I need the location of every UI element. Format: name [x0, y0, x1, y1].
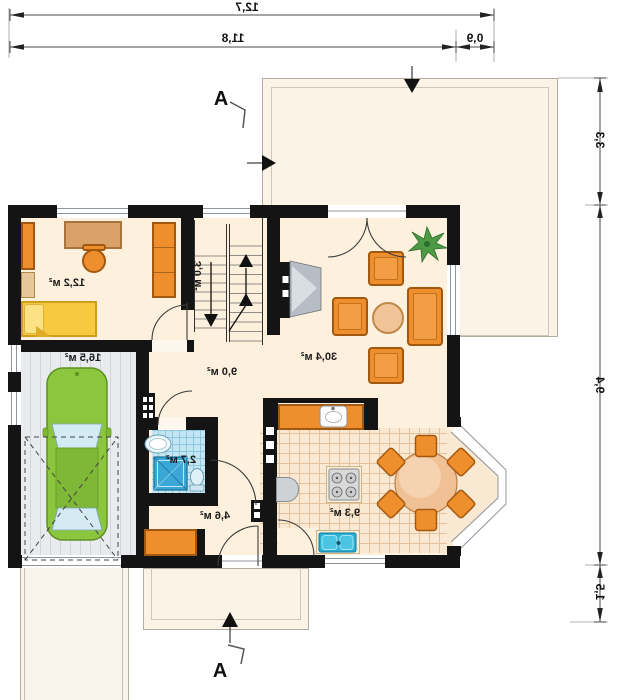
- kitchen-island: [326, 466, 362, 503]
- dimension-side-width: 0,9: [443, 31, 507, 45]
- coffee-table: [372, 302, 404, 334]
- dimension-right-lower: 1,5: [593, 560, 607, 624]
- radiator-mark: [143, 413, 147, 418]
- wall: [8, 555, 22, 568]
- cabinet: [21, 272, 35, 298]
- kitchen-counter: [278, 404, 364, 430]
- radiator-mark: [266, 441, 274, 449]
- wall: [267, 205, 280, 335]
- radiator-mark: [149, 413, 153, 418]
- office-door-opening: [152, 340, 187, 352]
- wardrobe: [152, 222, 176, 298]
- dimension-main-width: 11,8: [201, 31, 265, 45]
- room-label-office: 12,2 м²: [35, 277, 99, 289]
- radiator-mark: [266, 427, 274, 435]
- wall: [187, 340, 194, 352]
- room-label-kitchen: 9,3 м²: [313, 507, 377, 519]
- wardrobe-shelf-line: [154, 272, 174, 273]
- wall: [447, 553, 460, 568]
- dimension-right-main: 9,4: [593, 353, 607, 417]
- wall: [197, 529, 205, 556]
- room-label-hall: 9,0 м²: [190, 366, 254, 378]
- room-label-entrance-hall: 4,6 м²: [183, 510, 247, 522]
- window: [57, 205, 128, 218]
- hall-closet: [144, 529, 197, 556]
- window: [447, 265, 460, 335]
- wall: [250, 205, 328, 218]
- armchair-cushion: [374, 353, 398, 378]
- room-label-garage: 16,5 м²: [51, 352, 115, 364]
- window: [8, 392, 21, 425]
- room-label-bathroom: 2,7 м²: [149, 454, 213, 466]
- wardrobe-shelf-line: [154, 247, 174, 248]
- radiator-mark: [149, 397, 153, 402]
- terrace-door-opening: [328, 205, 406, 218]
- sink-counter: [316, 530, 360, 554]
- window: [325, 555, 385, 568]
- window: [8, 345, 21, 372]
- armchair: [332, 297, 368, 336]
- radiator-mark: [143, 397, 147, 402]
- radiator-mark: [266, 455, 274, 463]
- bookshelf: [21, 222, 35, 270]
- wall: [364, 398, 378, 430]
- driveway: [20, 568, 129, 700]
- driveway-line: [122, 568, 123, 700]
- section-mark-bottom: A: [200, 660, 240, 683]
- porch-inner-line: [151, 568, 301, 620]
- radiator-mark: [254, 512, 260, 518]
- armchair-cushion: [338, 303, 362, 330]
- wall: [149, 493, 218, 506]
- section-mark-top: A: [201, 88, 241, 111]
- dimension-total-width: 12,7: [215, 0, 279, 14]
- wall: [263, 398, 378, 403]
- floor-plan: 12,7 11,8 0,9 3,3 9,4 1,5 12,2 м² 16,5 м…: [0, 0, 620, 700]
- radiator-mark: [149, 405, 153, 410]
- armchair: [368, 251, 404, 286]
- sofa: [407, 287, 443, 346]
- wall: [447, 335, 460, 418]
- wall: [447, 205, 460, 265]
- room-label-living-room: 30,4 м²: [287, 351, 351, 363]
- driveway-line: [24, 568, 25, 700]
- garage-floor: [21, 352, 136, 557]
- window: [203, 205, 250, 218]
- entrance-door-opening: [222, 555, 262, 568]
- office-chair: [82, 249, 106, 273]
- sofa-cushion: [413, 293, 437, 340]
- armchair-cushion: [374, 257, 398, 280]
- room-label-staircase: 3,0 м²: [192, 244, 204, 308]
- wall: [8, 205, 21, 345]
- kitchen-corner-patch: [278, 528, 318, 554]
- pillow: [24, 304, 44, 334]
- armchair: [368, 347, 404, 384]
- refrigerator: [276, 477, 299, 502]
- radiator-mark: [254, 503, 260, 509]
- wall: [263, 398, 277, 568]
- bathroom-door-opening: [158, 417, 186, 430]
- wall: [8, 340, 152, 352]
- dimension-right-upper: 3,3: [593, 108, 607, 172]
- wall: [8, 372, 21, 392]
- wall: [8, 425, 21, 568]
- garage-door-opening: [22, 555, 121, 568]
- radiator-mark: [143, 405, 147, 410]
